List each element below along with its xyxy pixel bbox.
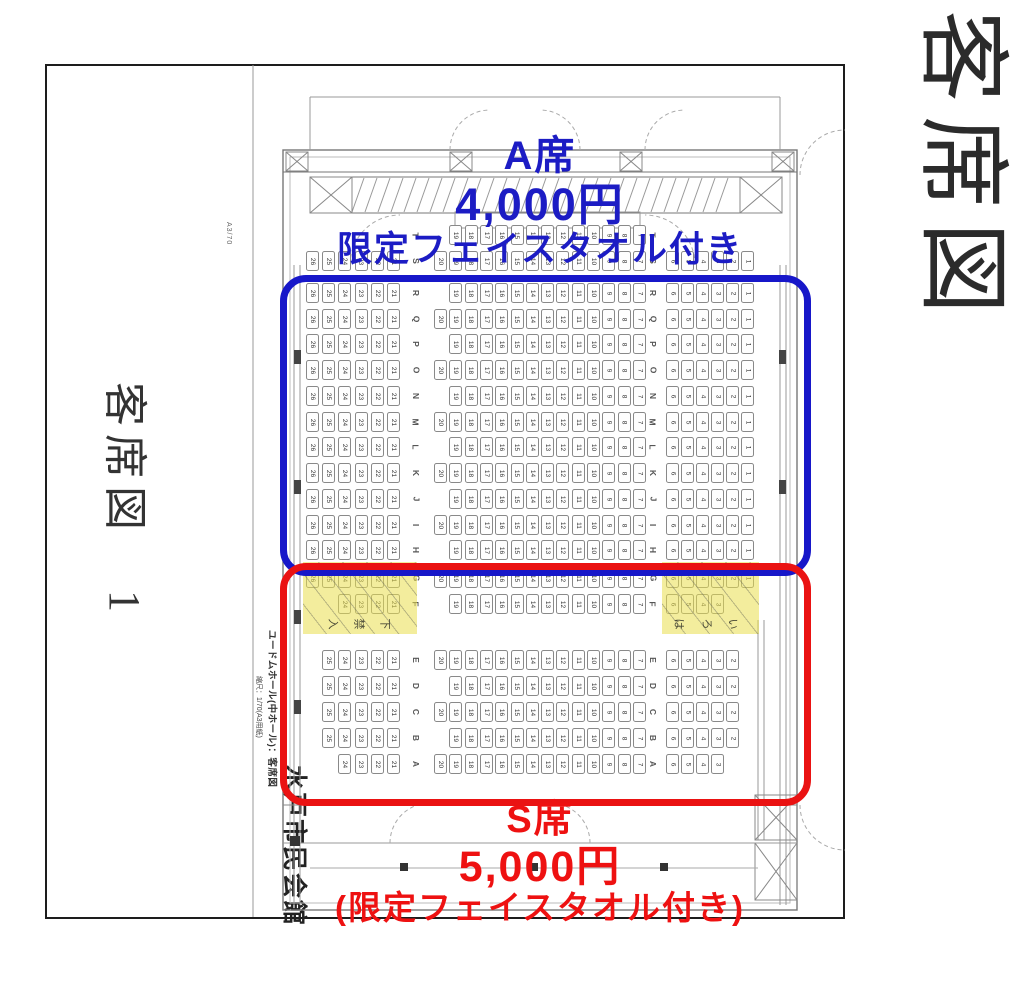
- a-seat-note: 限定フェイスタオル付き: [240, 232, 840, 267]
- a-seat-price: 4,000円: [240, 182, 840, 227]
- seating-chart-page: { "right_title": "客席図", "left_margin": {…: [0, 0, 1024, 986]
- page-title-vertical: 客席図: [916, 10, 1008, 328]
- s-seat-zone-outline: [280, 563, 811, 806]
- a-seat-label: A席: [240, 136, 840, 176]
- a-seat-zone-outline: [280, 275, 811, 576]
- s-seat-note: (限定フェイスタオル付き): [240, 891, 840, 924]
- s-seat-label: S席: [240, 801, 840, 839]
- s-seat-price: 5,000円: [240, 846, 840, 889]
